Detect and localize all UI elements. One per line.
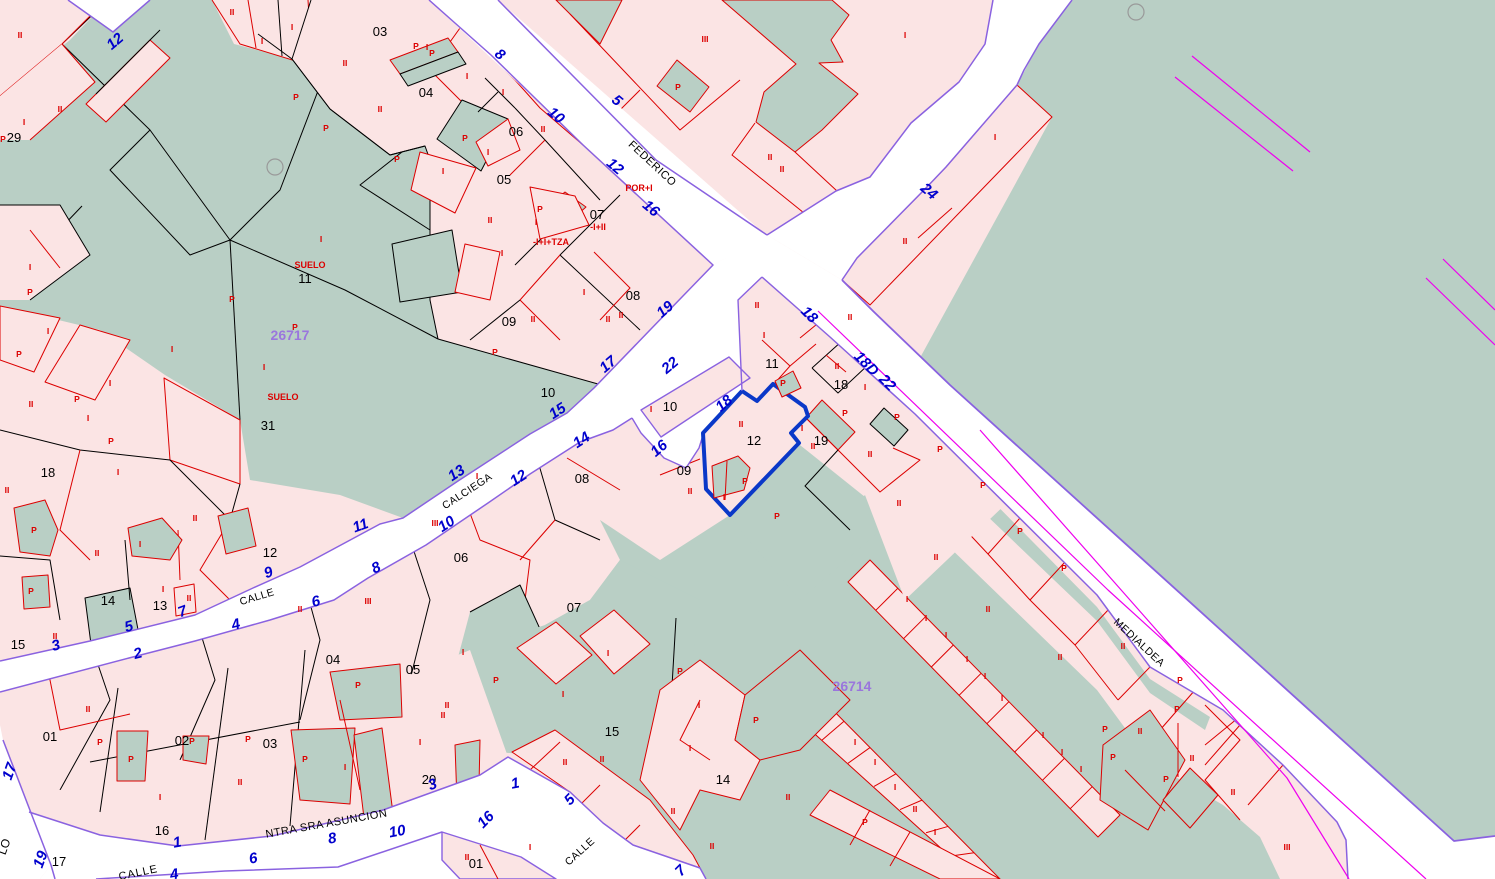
svg-text:14: 14: [716, 772, 730, 787]
svg-text:P: P: [1177, 675, 1183, 685]
svg-text:I: I: [994, 132, 996, 142]
svg-text:I: I: [966, 654, 968, 664]
svg-text:P: P: [462, 133, 468, 143]
svg-text:II: II: [780, 164, 785, 174]
svg-text:I: I: [263, 362, 265, 372]
svg-text:II: II: [378, 104, 383, 114]
svg-text:26714: 26714: [833, 678, 872, 694]
svg-text:II: II: [606, 314, 611, 324]
svg-text:II: II: [897, 498, 902, 508]
svg-text:II: II: [755, 300, 760, 310]
svg-text:14: 14: [101, 593, 115, 608]
svg-text:II: II: [671, 806, 676, 816]
svg-text:04: 04: [419, 85, 433, 100]
svg-text:II: II: [903, 236, 908, 246]
svg-text:I: I: [698, 700, 700, 710]
svg-text:15: 15: [11, 637, 25, 652]
svg-text:12: 12: [263, 545, 277, 560]
svg-text:I: I: [1061, 747, 1063, 757]
svg-text:SUELO: SUELO: [294, 260, 325, 270]
svg-text:I: I: [162, 584, 164, 594]
svg-text:-I+II: -I+II: [590, 222, 606, 232]
svg-text:I: I: [535, 217, 537, 227]
svg-text:II: II: [768, 152, 773, 162]
svg-text:I: I: [159, 792, 161, 802]
svg-text:I: I: [583, 287, 585, 297]
svg-text:P: P: [677, 666, 683, 676]
svg-text:I: I: [934, 827, 936, 837]
svg-text:I: I: [344, 762, 346, 772]
svg-text:II: II: [298, 604, 303, 614]
svg-text:II: II: [238, 777, 243, 787]
svg-text:03: 03: [373, 24, 387, 39]
svg-text:II: II: [441, 710, 446, 720]
svg-text:-I+I+TZA: -I+I+TZA: [533, 237, 570, 247]
svg-text:P: P: [493, 675, 499, 685]
svg-text:P: P: [980, 480, 986, 490]
svg-text:P: P: [937, 444, 943, 454]
svg-text:II: II: [986, 604, 991, 614]
svg-text:II: II: [187, 593, 192, 603]
svg-text:P: P: [1061, 563, 1067, 573]
svg-text:26717: 26717: [271, 327, 310, 343]
svg-text:I: I: [906, 594, 908, 604]
svg-text:11: 11: [298, 271, 312, 286]
svg-text:I: I: [904, 30, 906, 40]
svg-text:III: III: [701, 34, 708, 44]
svg-text:II: II: [868, 449, 873, 459]
svg-text:P: P: [842, 408, 848, 418]
svg-text:P: P: [108, 436, 114, 446]
svg-text:03: 03: [263, 736, 277, 751]
svg-text:I: I: [419, 737, 421, 747]
svg-text:II: II: [835, 361, 840, 371]
svg-text:I: I: [261, 36, 263, 46]
svg-text:II: II: [86, 704, 91, 714]
svg-text:I: I: [1042, 730, 1044, 740]
svg-text:I: I: [426, 42, 428, 52]
svg-text:II: II: [1058, 652, 1063, 662]
svg-text:II: II: [811, 441, 816, 451]
svg-text:II: II: [488, 215, 493, 225]
svg-text:10: 10: [663, 399, 677, 414]
svg-text:P: P: [753, 715, 759, 725]
svg-text:P: P: [355, 680, 361, 690]
svg-text:II: II: [1138, 726, 1143, 736]
svg-text:I: I: [320, 234, 322, 244]
svg-text:12: 12: [747, 433, 761, 448]
svg-text:06: 06: [509, 124, 523, 139]
svg-text:II: II: [465, 852, 470, 862]
svg-text:I: I: [502, 87, 504, 97]
svg-text:11: 11: [765, 356, 779, 371]
svg-text:I: I: [689, 743, 691, 753]
svg-text:I: I: [925, 613, 927, 623]
svg-text:II: II: [1231, 787, 1236, 797]
svg-text:13: 13: [153, 598, 167, 613]
svg-text:I: I: [23, 117, 25, 127]
svg-text:02: 02: [175, 733, 189, 748]
svg-text:I: I: [291, 22, 293, 32]
svg-text:P: P: [1174, 704, 1180, 714]
svg-text:05: 05: [406, 662, 420, 677]
svg-text:II: II: [230, 7, 235, 17]
svg-text:I: I: [476, 471, 478, 481]
svg-text:16: 16: [155, 823, 169, 838]
svg-text:I: I: [763, 330, 765, 340]
svg-text:II: II: [193, 513, 198, 523]
svg-text:P: P: [0, 134, 6, 144]
svg-text:P: P: [492, 347, 498, 357]
svg-text:P: P: [413, 41, 419, 51]
svg-text:19: 19: [814, 433, 828, 448]
svg-text:I: I: [650, 404, 652, 414]
svg-text:06: 06: [454, 550, 468, 565]
svg-text:II: II: [600, 754, 605, 764]
svg-text:P: P: [742, 476, 748, 486]
svg-text:SUELO: SUELO: [267, 392, 298, 402]
svg-text:I: I: [801, 423, 803, 433]
svg-text:P: P: [323, 123, 329, 133]
svg-text:II: II: [688, 486, 693, 496]
svg-text:II: II: [619, 310, 624, 320]
svg-text:P: P: [894, 412, 900, 422]
svg-text:I: I: [29, 262, 31, 272]
svg-text:09: 09: [677, 463, 691, 478]
svg-text:P: P: [229, 294, 235, 304]
svg-text:II: II: [18, 30, 23, 40]
svg-text:I: I: [466, 71, 468, 81]
svg-text:P: P: [302, 754, 308, 764]
svg-text:II: II: [913, 804, 918, 814]
svg-text:01: 01: [43, 729, 57, 744]
svg-text:II: II: [848, 312, 853, 322]
svg-text:P: P: [293, 92, 299, 102]
svg-text:I: I: [171, 344, 173, 354]
svg-text:II: II: [541, 124, 546, 134]
svg-text:I: I: [462, 647, 464, 657]
svg-text:P: P: [1017, 526, 1023, 536]
svg-text:07: 07: [590, 207, 604, 222]
svg-text:I: I: [1080, 764, 1082, 774]
svg-text:II: II: [5, 485, 10, 495]
svg-text:07: 07: [567, 600, 581, 615]
svg-text:POR+I: POR+I: [625, 183, 652, 193]
svg-text:P: P: [74, 394, 80, 404]
svg-text:I: I: [117, 467, 119, 477]
svg-text:05: 05: [497, 172, 511, 187]
svg-text:P: P: [97, 737, 103, 747]
svg-text:P: P: [16, 349, 22, 359]
svg-text:I: I: [501, 248, 503, 258]
svg-text:III: III: [1283, 842, 1290, 852]
svg-text:P: P: [537, 204, 543, 214]
svg-text:II: II: [1190, 753, 1195, 763]
svg-text:II: II: [934, 552, 939, 562]
svg-text:P: P: [292, 322, 298, 332]
svg-text:II: II: [786, 792, 791, 802]
svg-text:I: I: [984, 671, 986, 681]
svg-text:I: I: [529, 842, 531, 852]
svg-text:II: II: [29, 399, 34, 409]
svg-text:I: I: [894, 782, 896, 792]
svg-text:I: I: [487, 147, 489, 157]
svg-text:P: P: [780, 378, 786, 388]
svg-text:P: P: [189, 736, 195, 746]
svg-text:I: I: [562, 689, 564, 699]
svg-text:I: I: [945, 630, 947, 640]
svg-text:P: P: [862, 817, 868, 827]
svg-text:P: P: [1163, 774, 1169, 784]
svg-text:15: 15: [605, 724, 619, 739]
svg-text:09: 09: [502, 314, 516, 329]
svg-text:I: I: [442, 166, 444, 176]
svg-text:P: P: [128, 754, 134, 764]
svg-text:18: 18: [41, 465, 55, 480]
svg-text:01: 01: [469, 856, 483, 871]
svg-text:10: 10: [541, 385, 555, 400]
svg-text:P: P: [675, 82, 681, 92]
svg-text:II: II: [1121, 641, 1126, 651]
svg-text:I: I: [854, 737, 856, 747]
svg-text:29: 29: [7, 130, 21, 145]
svg-text:17: 17: [52, 854, 66, 869]
svg-text:II: II: [445, 700, 450, 710]
svg-text:P: P: [27, 287, 33, 297]
svg-text:P: P: [31, 525, 37, 535]
svg-text:I: I: [87, 413, 89, 423]
svg-text:I: I: [1001, 693, 1003, 703]
svg-text:18: 18: [834, 377, 848, 392]
svg-text:P: P: [28, 586, 34, 596]
svg-text:P: P: [429, 48, 435, 58]
svg-text:04: 04: [326, 652, 340, 667]
svg-text:II: II: [58, 104, 63, 114]
svg-text:I: I: [109, 378, 111, 388]
svg-text:P: P: [245, 734, 251, 744]
svg-text:II: II: [343, 58, 348, 68]
svg-text:III: III: [431, 518, 438, 528]
svg-text:II: II: [739, 419, 744, 429]
svg-text:II: II: [563, 757, 568, 767]
svg-text:II: II: [531, 314, 536, 324]
svg-text:II: II: [710, 841, 715, 851]
svg-text:I: I: [607, 648, 609, 658]
svg-text:P: P: [394, 154, 400, 164]
svg-text:I: I: [47, 326, 49, 336]
svg-text:II: II: [95, 548, 100, 558]
svg-text:I: I: [723, 492, 725, 502]
svg-text:P: P: [1102, 724, 1108, 734]
svg-text:II: II: [53, 631, 58, 641]
svg-text:P: P: [1110, 752, 1116, 762]
svg-text:I: I: [139, 539, 141, 549]
svg-text:31: 31: [261, 418, 275, 433]
svg-text:08: 08: [626, 288, 640, 303]
svg-text:08: 08: [575, 471, 589, 486]
svg-text:I: I: [864, 382, 866, 392]
svg-text:I: I: [874, 757, 876, 767]
svg-text:P: P: [774, 511, 780, 521]
svg-text:III: III: [364, 596, 371, 606]
